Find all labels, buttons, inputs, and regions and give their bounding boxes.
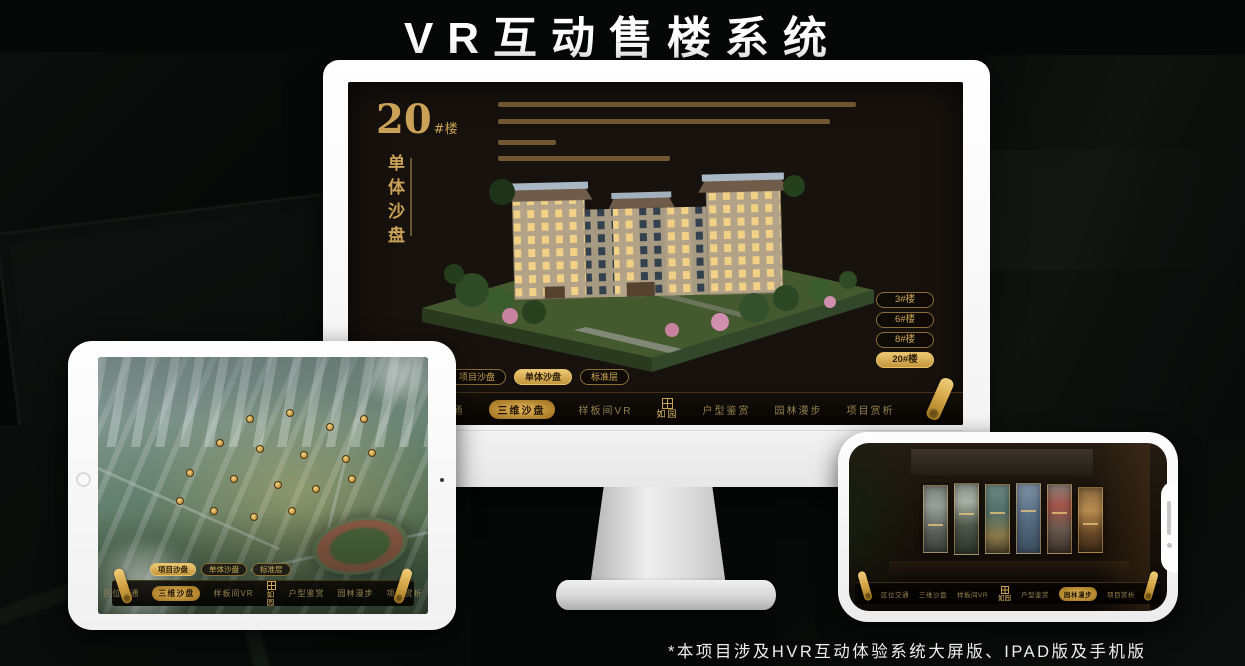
floor-button-20[interactable]: 20#楼 [876, 352, 934, 368]
building-badge[interactable] [250, 513, 258, 521]
tablet-mode-tabs: 项目沙盘 单体沙盘 标准层 [150, 563, 291, 576]
phone-notch [1161, 481, 1178, 573]
tab-standard-floor[interactable]: 标准层 [580, 369, 629, 385]
gallery-panel[interactable] [1078, 487, 1103, 553]
gallery-panel[interactable] [985, 484, 1010, 554]
panel-caption [1021, 510, 1036, 512]
tab-project-sandbox[interactable]: 项目沙盘 [150, 563, 196, 576]
building-badge[interactable] [288, 507, 296, 515]
building-badge[interactable] [256, 445, 264, 453]
building-badge[interactable] [274, 481, 282, 489]
floor-button-8[interactable]: 8#楼 [876, 332, 934, 348]
nav-unit-gallery[interactable]: 户型鉴赏 [1021, 589, 1049, 599]
tablet-home-button[interactable] [76, 472, 91, 487]
building-badge[interactable] [342, 455, 350, 463]
building-badge[interactable] [216, 439, 224, 447]
building-badge[interactable] [186, 469, 194, 477]
footnote-text: *本项目涉及HVR互动体验系统大屏版、IPAD版及手机版 [668, 638, 1245, 662]
brand-seal-icon [1001, 586, 1009, 594]
tablet-camera-dot [440, 478, 444, 482]
brand-logo: 如园 [656, 398, 678, 420]
floor-button-group: 3#楼 6#楼 8#楼 20#楼 [876, 292, 934, 368]
block-number-suffix: #楼 [434, 122, 458, 137]
panel-caption [990, 512, 1005, 514]
tab-single-sandbox[interactable]: 单体沙盘 [201, 563, 247, 576]
gallery-panel[interactable] [954, 483, 979, 555]
nav-3d-sandbox[interactable]: 三维沙盘 [489, 400, 555, 419]
block-number: 20 [376, 96, 432, 143]
nav-project-review[interactable]: 项目赏析 [846, 402, 894, 417]
panel-caption [928, 524, 943, 526]
brand-logo: 如园 [267, 581, 276, 606]
nav-unit-gallery[interactable]: 户型鉴赏 [289, 588, 325, 599]
nav-showroom-vr[interactable]: 样板间VR [579, 402, 633, 417]
brand-seal-icon [267, 581, 276, 590]
phone-speaker-pill [1167, 501, 1171, 535]
building-badge[interactable] [348, 475, 356, 483]
tab-single-sandbox[interactable]: 单体沙盘 [514, 369, 572, 385]
phone-camera-dot [1167, 543, 1172, 548]
background-photo-highlight [987, 150, 1245, 270]
building-badge[interactable] [286, 409, 294, 417]
building-badge[interactable] [230, 475, 238, 483]
phone-screen: 区位交通 三维沙盘 样板间VR 如园 户型鉴赏 园林漫步 项目赏析 [849, 443, 1167, 611]
building-badge[interactable] [326, 423, 334, 431]
page-title: VR互动售楼系统 [0, 2, 1245, 66]
block-heading: 20#楼 [376, 96, 458, 143]
building-badge[interactable] [312, 485, 320, 493]
phone-device: 区位交通 三维沙盘 样板间VR 如园 户型鉴赏 园林漫步 项目赏析 [838, 432, 1178, 622]
background-photo-block [987, 55, 1245, 450]
background-photo-block [0, 52, 345, 242]
tab-standard-floor[interactable]: 标准层 [252, 563, 291, 576]
monitor-stand-neck [590, 487, 726, 586]
building-badge[interactable] [210, 507, 218, 515]
nav-location-traffic[interactable]: 区位交通 [881, 589, 909, 599]
panel-caption [1052, 512, 1067, 514]
nav-garden-walk[interactable]: 园林漫步 [774, 402, 822, 417]
description-line [498, 119, 830, 124]
mode-tabs: 项目沙盘 单体沙盘 标准层 [448, 369, 629, 385]
gallery-panel[interactable] [1047, 484, 1072, 554]
building-badge[interactable] [360, 415, 368, 423]
floor-button-6[interactable]: 6#楼 [876, 312, 934, 328]
monitor-stand-base [556, 580, 776, 610]
nav-3d-sandbox[interactable]: 三维沙盘 [152, 586, 200, 601]
nav-showroom-vr[interactable]: 样板间VR [213, 588, 253, 599]
vertical-title: 单体沙盘 [382, 154, 407, 250]
gate-lintel [911, 449, 1093, 475]
tablet-screen: 项目沙盘 单体沙盘 标准层 区位交通 三维沙盘 样板间VR 如园 户型鉴赏 园林… [98, 357, 428, 614]
brand-seal-icon [662, 398, 673, 409]
building-badge[interactable] [246, 415, 254, 423]
brand-logo-text: 如园 [998, 595, 1011, 602]
nav-3d-sandbox[interactable]: 三维沙盘 [919, 589, 947, 599]
gallery-panel[interactable] [923, 485, 948, 553]
building-badge[interactable] [368, 449, 376, 457]
gallery-panel[interactable] [1016, 483, 1041, 554]
brand-logo: 如园 [998, 586, 1011, 602]
nav-garden-walk[interactable]: 园林漫步 [338, 588, 374, 599]
vertical-english-deco [410, 158, 412, 236]
nav-project-review[interactable]: 项目赏析 [1107, 589, 1135, 599]
building-badge[interactable] [176, 497, 184, 505]
panel-caption [1083, 523, 1098, 525]
page-canvas: VR互动售楼系统 20#楼 单体沙盘 [0, 0, 1245, 666]
nav-unit-gallery[interactable]: 户型鉴赏 [702, 402, 750, 417]
floor-reflection [889, 561, 1129, 577]
nav-garden-walk[interactable]: 园林漫步 [1059, 587, 1097, 601]
tablet-navbar: 区位交通 三维沙盘 样板间VR 如园 户型鉴赏 园林漫步 项目赏析 [112, 580, 414, 606]
building-model-graphic[interactable] [414, 140, 884, 392]
phone-navbar: 区位交通 三维沙盘 样板间VR 如园 户型鉴赏 园林漫步 项目赏析 [855, 582, 1161, 604]
panel-caption [959, 513, 974, 515]
tablet-device: 项目沙盘 单体沙盘 标准层 区位交通 三维沙盘 样板间VR 如园 户型鉴赏 园林… [68, 341, 456, 630]
floor-button-3[interactable]: 3#楼 [876, 292, 934, 308]
building-badge[interactable] [300, 451, 308, 459]
brand-logo-text: 如园 [267, 591, 276, 606]
brand-logo-text: 如园 [656, 411, 678, 420]
tab-project-sandbox[interactable]: 项目沙盘 [448, 369, 506, 385]
nav-showroom-vr[interactable]: 样板间VR [957, 589, 988, 599]
description-line [498, 102, 856, 107]
